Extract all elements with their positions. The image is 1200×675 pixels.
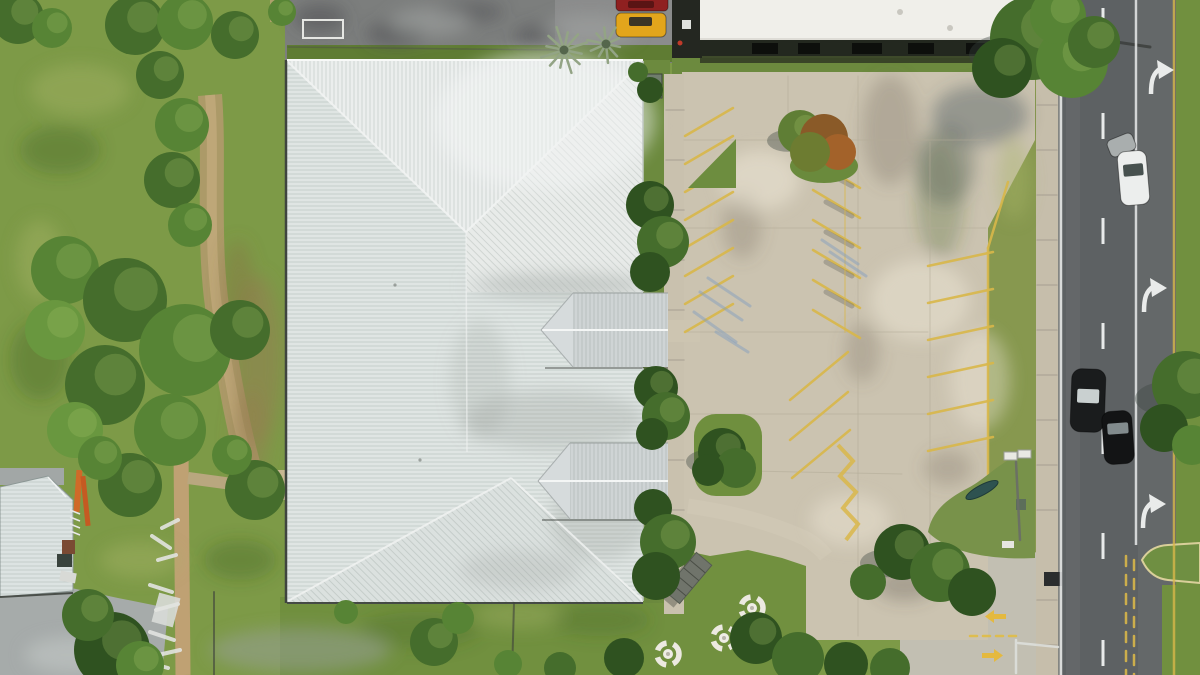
tree: [824, 642, 868, 675]
car-body: [1117, 150, 1151, 206]
tree-highlight: [175, 104, 203, 132]
tree-highlight: [644, 186, 669, 211]
rooftop-unit: [897, 9, 903, 15]
tree: [334, 600, 358, 624]
car-windshield: [629, 17, 652, 26]
tree-highlight: [229, 16, 254, 41]
tree-highlight: [650, 371, 673, 394]
crate: [62, 540, 75, 554]
path-vertical: [181, 450, 183, 675]
tree: [790, 132, 830, 172]
tree-highlight: [661, 520, 690, 549]
tree-highlight: [154, 56, 179, 81]
storm-drain: [1044, 572, 1062, 586]
tree-highlight: [47, 12, 68, 33]
car-windshield: [628, 1, 654, 8]
tree-highlight: [81, 595, 108, 622]
tree-highlight: [122, 460, 155, 493]
hydrant: [678, 41, 683, 46]
lamp-head: [1004, 452, 1017, 460]
tree-highlight: [660, 397, 685, 422]
tree-highlight: [94, 441, 117, 464]
tree: [692, 454, 724, 486]
car-windshield: [1107, 422, 1129, 434]
tree-highlight: [656, 222, 683, 249]
tree-highlight: [247, 467, 278, 498]
picnic-table-center: [750, 606, 754, 610]
tree-highlight: [227, 439, 248, 460]
tree-highlight: [95, 354, 137, 396]
building-window: [752, 43, 778, 54]
car-windshield: [1123, 163, 1144, 177]
tree: [632, 552, 680, 600]
grass-bottom-right: [1162, 585, 1200, 675]
car-windshield: [1077, 389, 1099, 404]
tree-highlight: [278, 1, 293, 16]
lane-dash: [1102, 113, 1105, 139]
tree: [636, 418, 668, 450]
walkway-spur: [666, 320, 700, 342]
palm-center: [602, 40, 611, 49]
picnic-table-center: [666, 652, 670, 656]
palm-frond: [606, 48, 608, 63]
building-window: [852, 43, 882, 54]
tree-highlight: [127, 2, 158, 33]
tree: [628, 62, 648, 82]
palm-center: [560, 46, 569, 55]
car: [1101, 410, 1135, 465]
car: [1117, 150, 1151, 206]
roof-vent: [418, 458, 421, 461]
picnic-table-center: [722, 636, 726, 640]
tree-highlight: [749, 618, 776, 645]
car: [616, 13, 666, 37]
tree-highlight: [994, 45, 1025, 76]
tree-highlight: [232, 307, 263, 338]
tree: [442, 602, 474, 634]
lane-dash: [1102, 218, 1105, 244]
lane-dash: [1102, 640, 1105, 666]
aerial-photo: [0, 0, 1200, 675]
dark-panel: [57, 554, 72, 567]
tree-highlight: [178, 0, 207, 29]
car: [616, 0, 668, 11]
tree-highlight: [47, 307, 78, 338]
tree-highlight: [184, 208, 207, 231]
roof-vent: [393, 283, 396, 286]
tree-highlight: [68, 408, 97, 437]
tree: [948, 568, 996, 616]
tree: [630, 252, 670, 292]
dark-building-gap: [672, 0, 702, 63]
car-body: [1101, 410, 1135, 465]
roof-hatch: [682, 20, 691, 29]
main-roof: [286, 50, 668, 603]
tree-highlight: [161, 402, 198, 439]
tree-highlight: [1087, 22, 1114, 49]
road-wear-track: [1066, 0, 1080, 675]
rooftop-unit: [947, 25, 953, 31]
tree-highlight: [114, 267, 158, 311]
palm-frond: [604, 27, 605, 40]
building-window: [908, 43, 934, 54]
tree: [850, 564, 886, 600]
building-window: [798, 43, 820, 54]
car: [1070, 368, 1106, 432]
lane-dash: [1102, 323, 1105, 349]
lane-dash: [1102, 533, 1105, 559]
tree-highlight: [134, 646, 159, 671]
lamp-head: [1018, 450, 1031, 458]
tree-highlight: [56, 243, 91, 278]
small-sign: [1002, 541, 1014, 548]
aerial-scene: [0, 0, 1200, 675]
tree-highlight: [165, 158, 194, 187]
